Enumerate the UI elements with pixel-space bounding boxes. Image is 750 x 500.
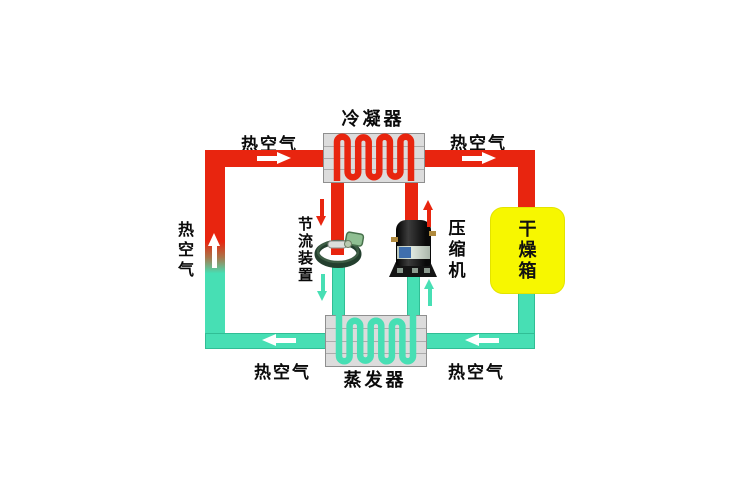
compressor-base-slot (412, 268, 418, 273)
evaporator-label: 蒸发器 (325, 366, 425, 392)
diagram-canvas: 冷凝器 蒸发器 节流装置 压缩机 干燥箱 热空气 热空气 热空气 热空气 热空气 (0, 0, 750, 500)
air-flow-left-arrow-icon (465, 334, 499, 347)
drying-box: 干燥箱 (490, 207, 565, 294)
air-flow-right-arrow-icon (257, 152, 291, 165)
compressor-fitting-left (391, 237, 398, 242)
refrigerant-pipe-evaporator-to-compressor (407, 274, 420, 317)
evaporator-coil (325, 315, 425, 365)
compressor-label: 压缩机 (447, 218, 467, 281)
compressor-base-slot (397, 268, 403, 273)
compressor-base-slot (424, 268, 430, 273)
hot-air-label-bottom-right: 热空气 (448, 358, 505, 383)
condenser-label: 冷凝器 (323, 105, 423, 131)
hot-air-label-left-side: 热空气 (176, 221, 196, 281)
refrigerant-up-arrow-cold-icon (424, 279, 435, 306)
refrigerant-pipe-compressor-to-condenser (405, 180, 418, 223)
air-flow-right-arrow-icon (462, 152, 496, 165)
condenser-coil (323, 133, 423, 181)
refrigerant-down-arrow-cold-icon (317, 274, 328, 301)
air-duct-right-hot (518, 150, 535, 212)
throttle-valve-icon (308, 228, 372, 272)
compressor-fitting-right (429, 231, 436, 236)
refrigerant-up-arrow-hot-icon (423, 200, 434, 227)
air-flow-up-arrow-icon (208, 233, 221, 269)
hot-air-label-bottom-left: 热空气 (254, 358, 311, 383)
drying-box-label: 干燥箱 (517, 219, 539, 282)
air-flow-left-arrow-icon (262, 334, 296, 347)
compressor-brand-sticker (399, 247, 411, 258)
refrigerant-down-arrow-hot-icon (316, 199, 327, 226)
